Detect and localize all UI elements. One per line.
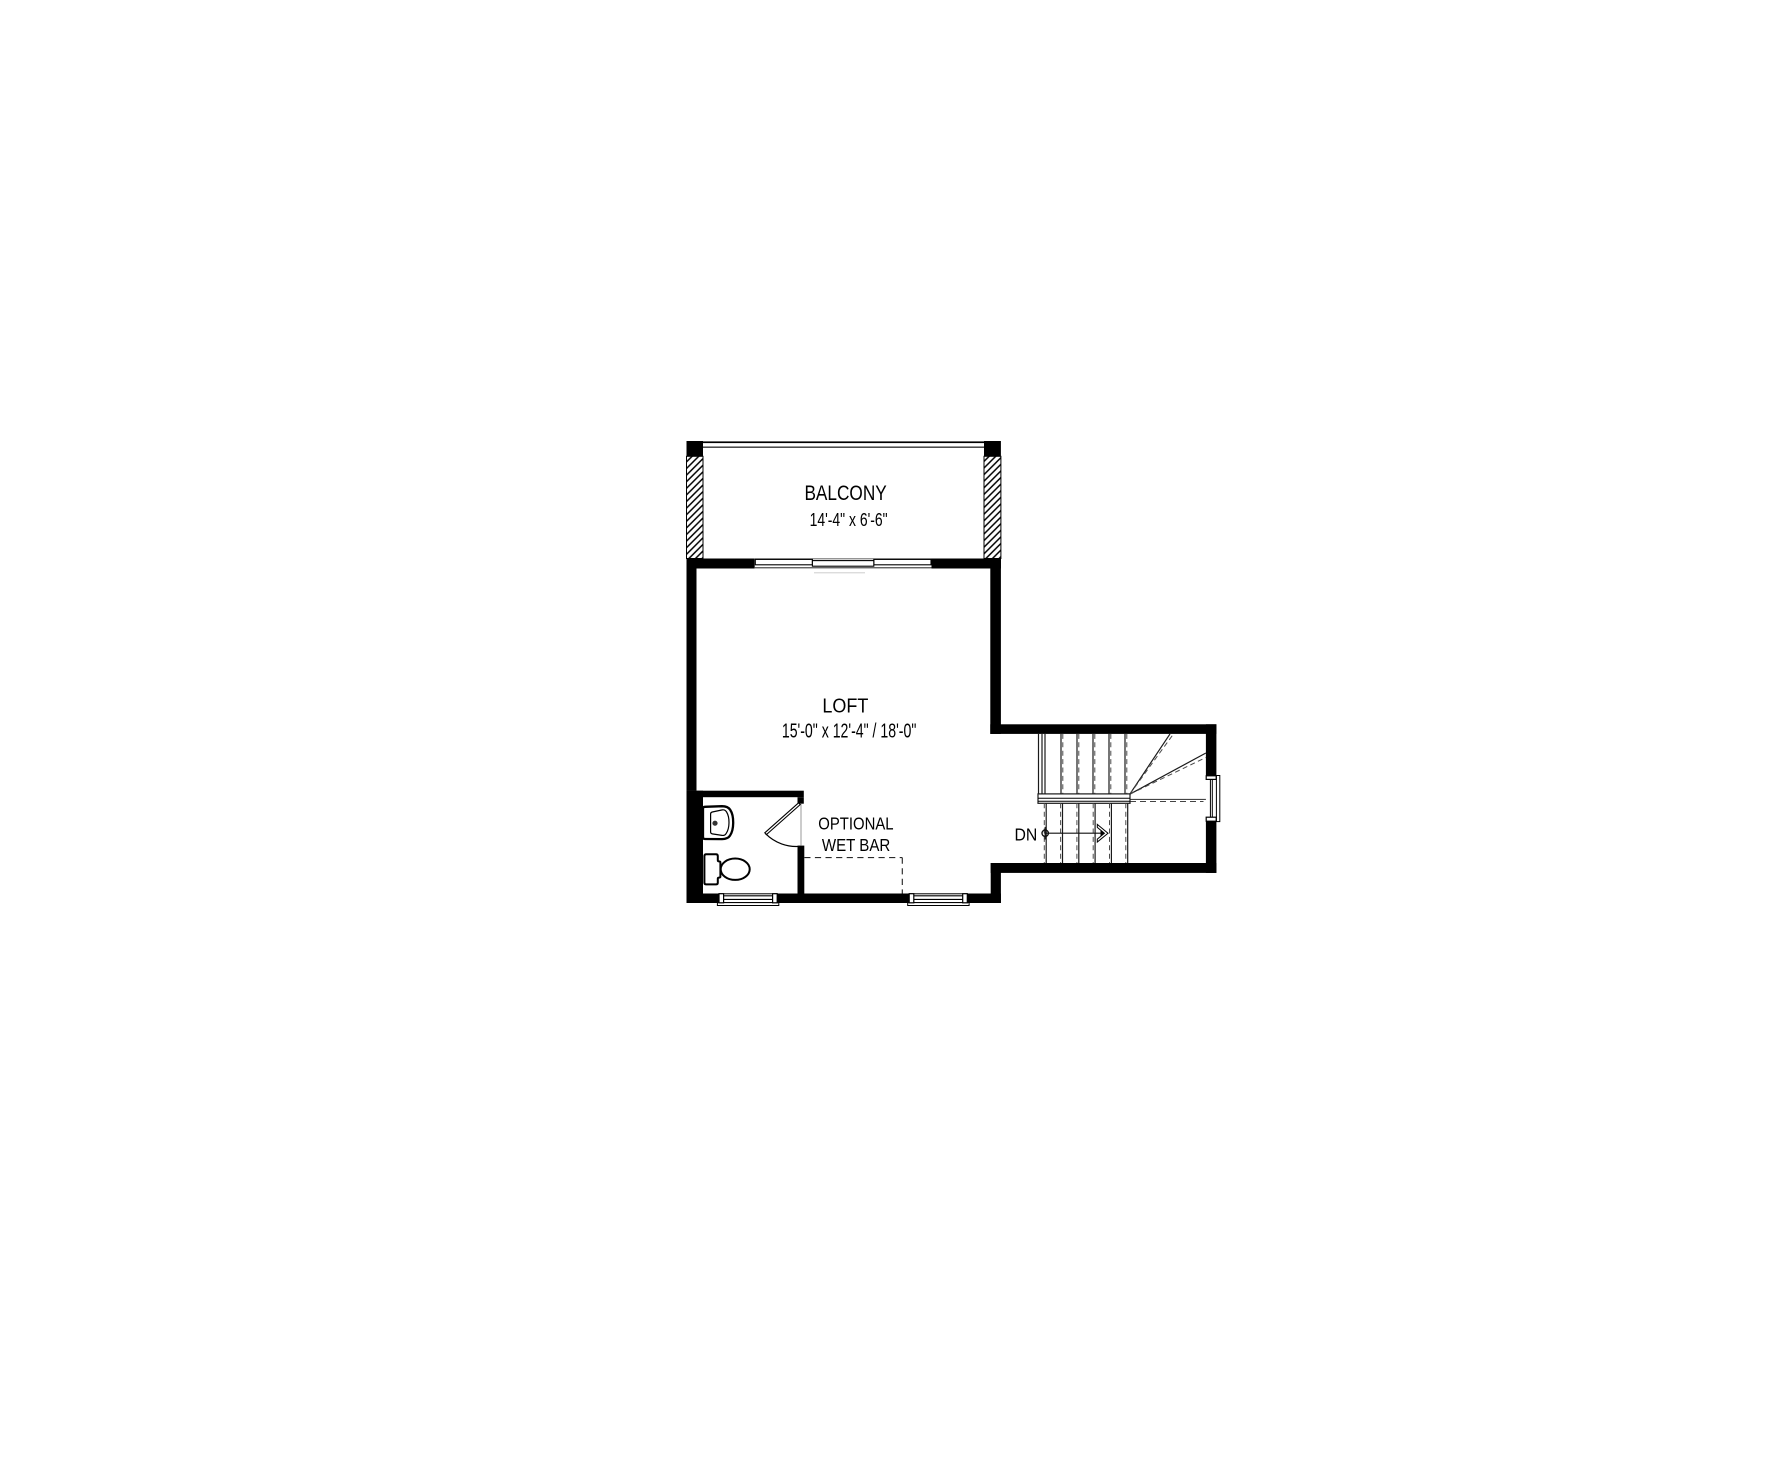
svg-text:BALCONY: BALCONY (804, 482, 886, 505)
svg-text:OPTIONAL: OPTIONAL (818, 814, 894, 834)
svg-text:14'-4" x 6'-6": 14'-4" x 6'-6" (810, 509, 888, 530)
svg-text:DN: DN (1015, 824, 1038, 844)
svg-text:15'-0" x 12'-4" / 18'-0": 15'-0" x 12'-4" / 18'-0" (782, 721, 917, 743)
svg-text:WET BAR: WET BAR (822, 835, 890, 855)
svg-text:LOFT: LOFT (822, 695, 868, 718)
